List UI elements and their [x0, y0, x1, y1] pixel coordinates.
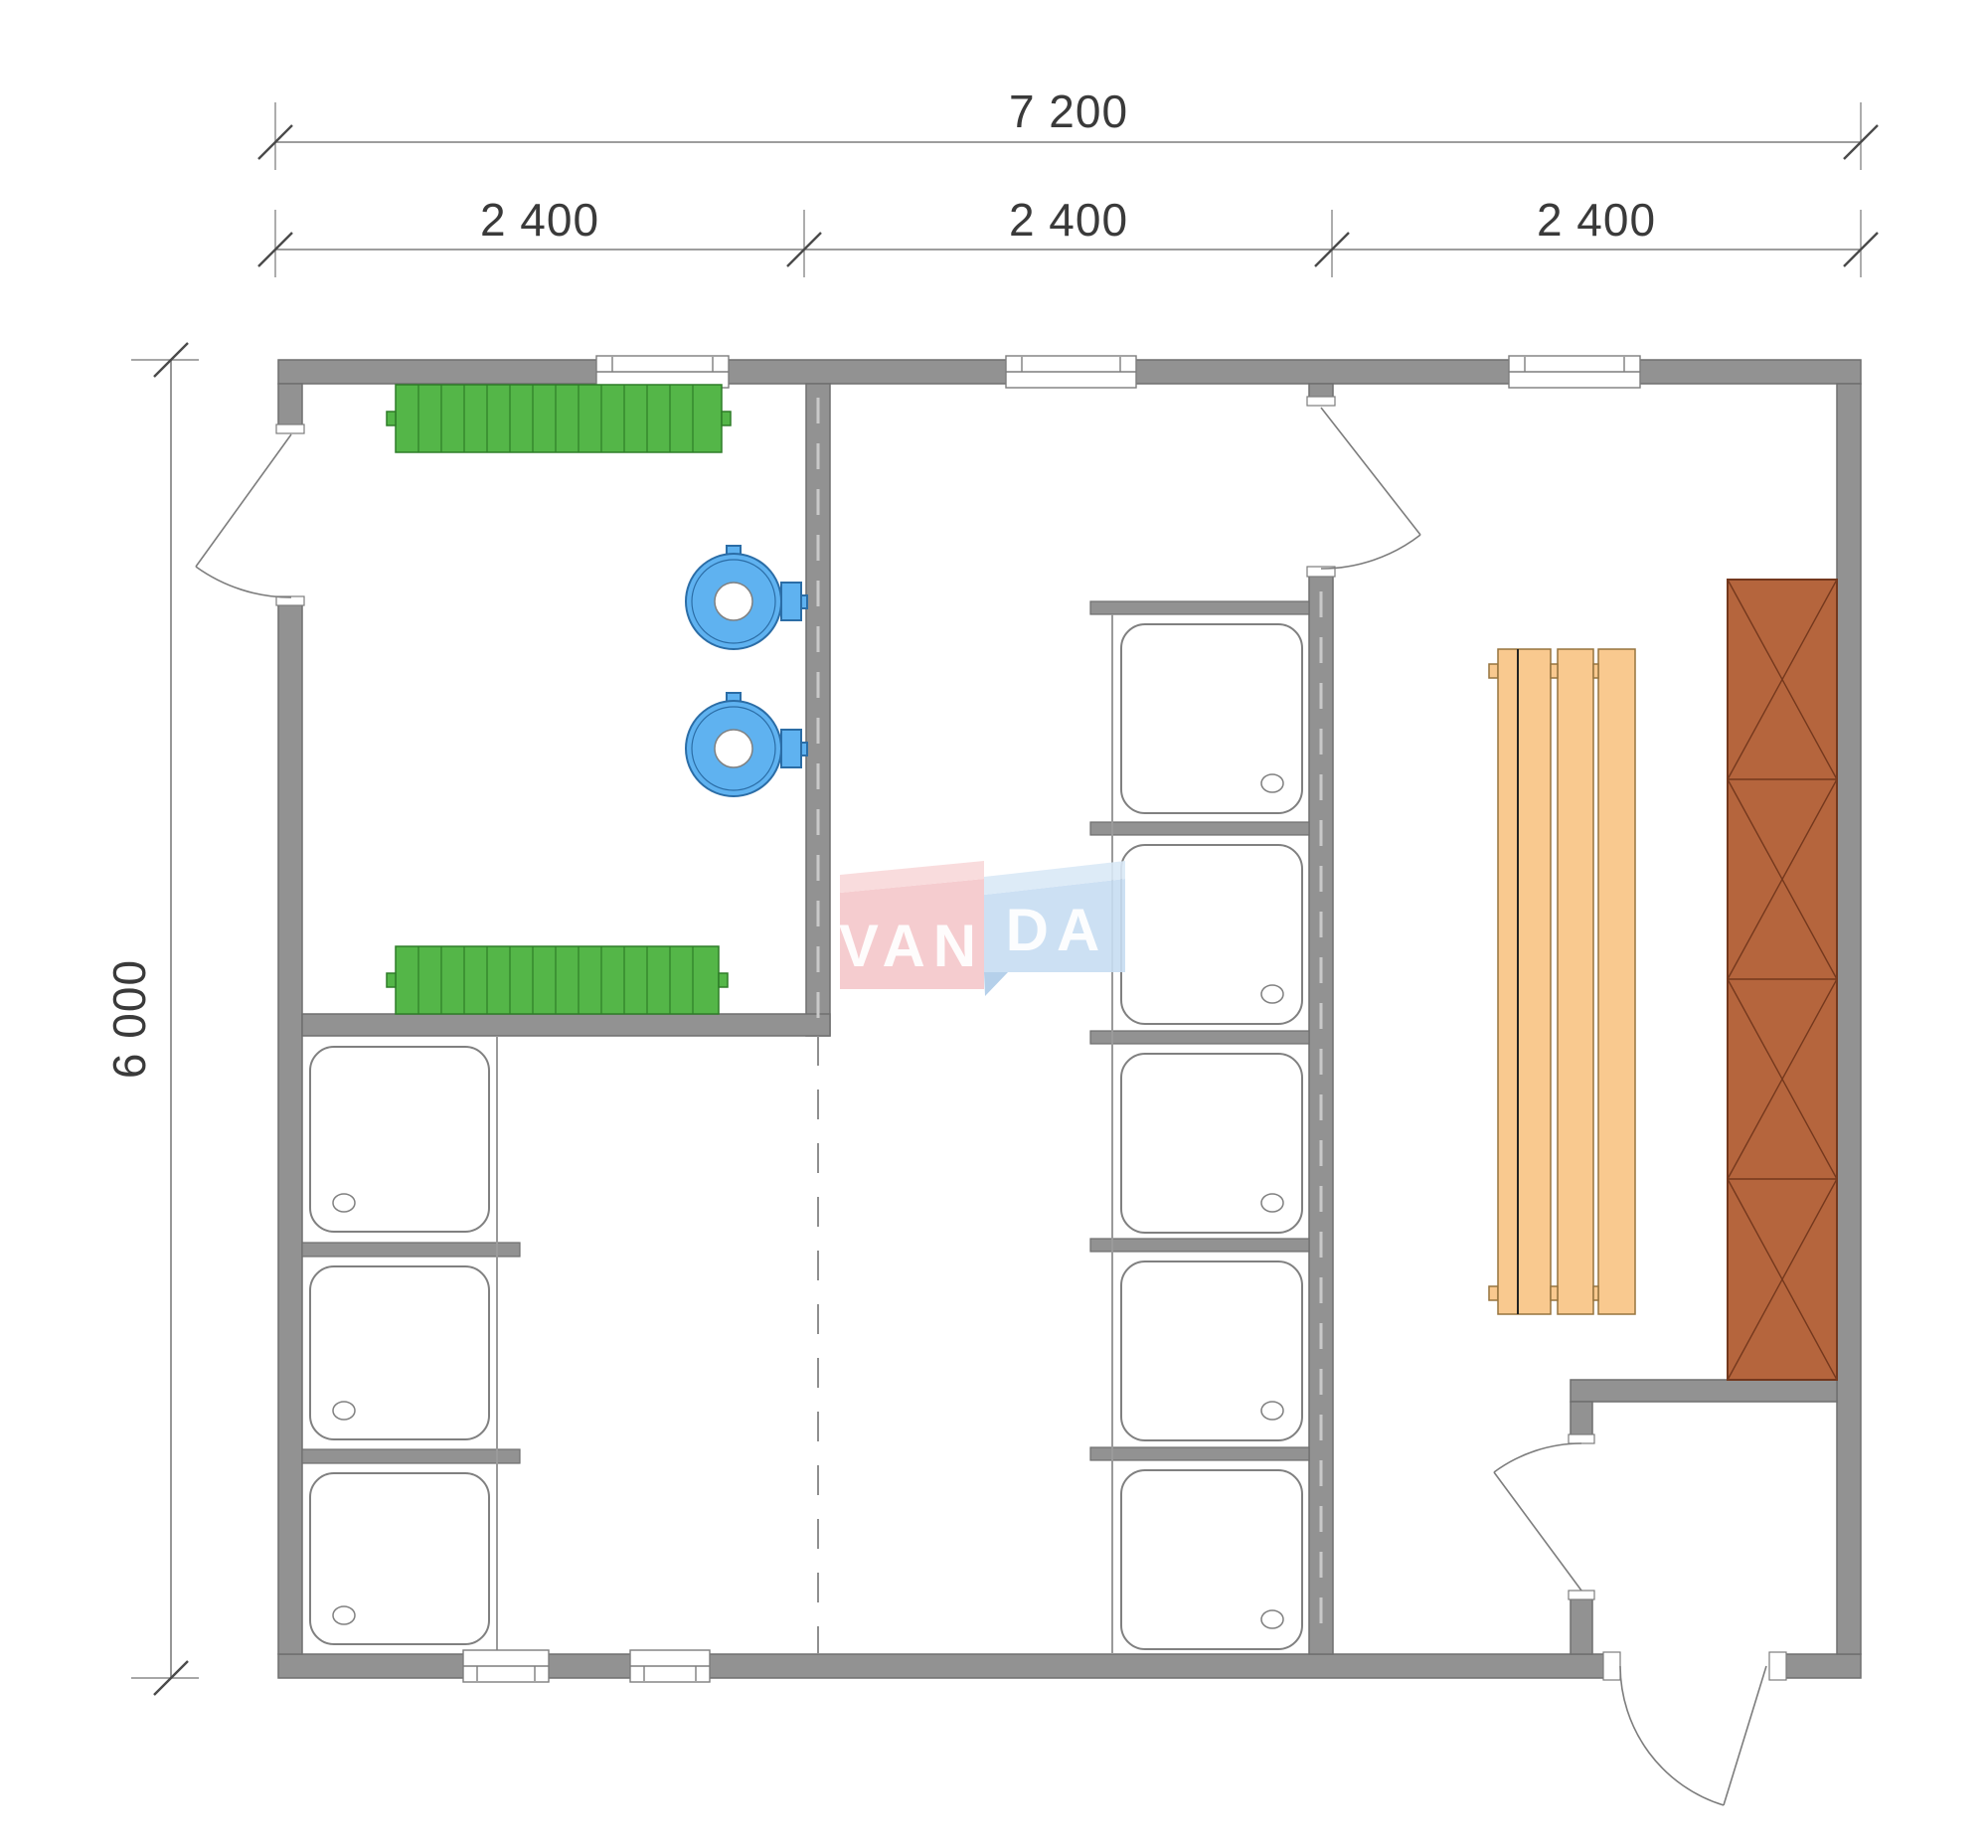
shower-stub-wall	[1090, 1239, 1309, 1252]
shower-stub-wall	[1090, 1447, 1309, 1460]
door-sauna-room	[1307, 397, 1420, 577]
shower-tray	[1121, 1261, 1302, 1440]
shower-stub-wall	[302, 1449, 520, 1463]
radiator-valve	[722, 412, 731, 425]
bench-support	[1593, 1286, 1598, 1300]
watermark-fold	[984, 972, 1008, 996]
watermark-text-da: DA	[1006, 897, 1108, 963]
door-leaf	[1494, 1472, 1581, 1591]
bench-support	[1593, 664, 1598, 678]
window	[463, 1650, 549, 1682]
dim-total-width-label: 7 200	[1009, 85, 1128, 137]
shower-stub-wall	[1090, 1031, 1309, 1044]
dim-segment-1-label: 2 400	[480, 194, 599, 246]
door-swing-arc	[1620, 1666, 1724, 1805]
dim-segment-3-label: 2 400	[1537, 194, 1656, 246]
shower-tray	[310, 1047, 489, 1232]
water-heater	[686, 693, 807, 796]
door-bottom-entrance	[1603, 1652, 1786, 1805]
dim-segment-2-label: 2 400	[1009, 194, 1128, 246]
radiator-valve	[719, 973, 728, 987]
radiator-valve	[387, 973, 396, 987]
wall-exterior-right	[1837, 384, 1861, 1654]
shower-stub-wall	[1090, 822, 1309, 835]
shower-tray	[1121, 1470, 1302, 1649]
door-left-entrance	[196, 424, 304, 605]
window	[1006, 356, 1136, 388]
window	[596, 356, 729, 388]
shower-tray	[310, 1473, 489, 1644]
wall-vestibule-top	[1571, 1380, 1837, 1402]
door-leaf	[1724, 1666, 1766, 1805]
dimension-top-segments: 2 400 2 400 2 400	[258, 194, 1878, 277]
bench-support	[1489, 1286, 1498, 1300]
door-vestibule	[1494, 1434, 1594, 1599]
shower-tray	[1121, 624, 1302, 813]
bench-support	[1489, 664, 1498, 678]
door-swing-arc	[1321, 535, 1420, 569]
vanda-watermark: VAN DA	[839, 861, 1125, 996]
watermark-text-van: VAN	[839, 913, 984, 979]
wall-partition-left-room	[806, 384, 830, 1036]
dimension-top-total: 7 200	[258, 85, 1878, 170]
floor-plan-drawing: 7 200 2 400 2 400 2 400 6 000	[0, 0, 1988, 1848]
wall-left-room-bottom	[302, 1014, 830, 1036]
radiator-valve	[387, 412, 396, 425]
radiator	[387, 385, 731, 452]
floor-plan-page: 7 200 2 400 2 400 2 400 6 000	[0, 0, 1988, 1848]
dim-height-label: 6 000	[103, 959, 155, 1079]
door-swing-arc	[1494, 1443, 1581, 1472]
bench-support	[1551, 664, 1558, 678]
door-leaf	[1321, 408, 1420, 535]
bench-support	[1551, 1286, 1558, 1300]
window	[630, 1650, 710, 1682]
locker-cabinet	[1728, 580, 1837, 1380]
sauna-bench	[1489, 649, 1635, 1314]
dimension-left-height: 6 000	[103, 343, 199, 1695]
shower-tray	[1121, 845, 1302, 1024]
shower-tray	[1121, 1054, 1302, 1233]
radiator	[387, 946, 728, 1014]
window	[1509, 356, 1640, 388]
water-heater	[686, 546, 807, 649]
shower-tray	[310, 1266, 489, 1439]
shower-stub-wall	[302, 1243, 520, 1257]
shower-stub-wall	[1090, 601, 1309, 614]
